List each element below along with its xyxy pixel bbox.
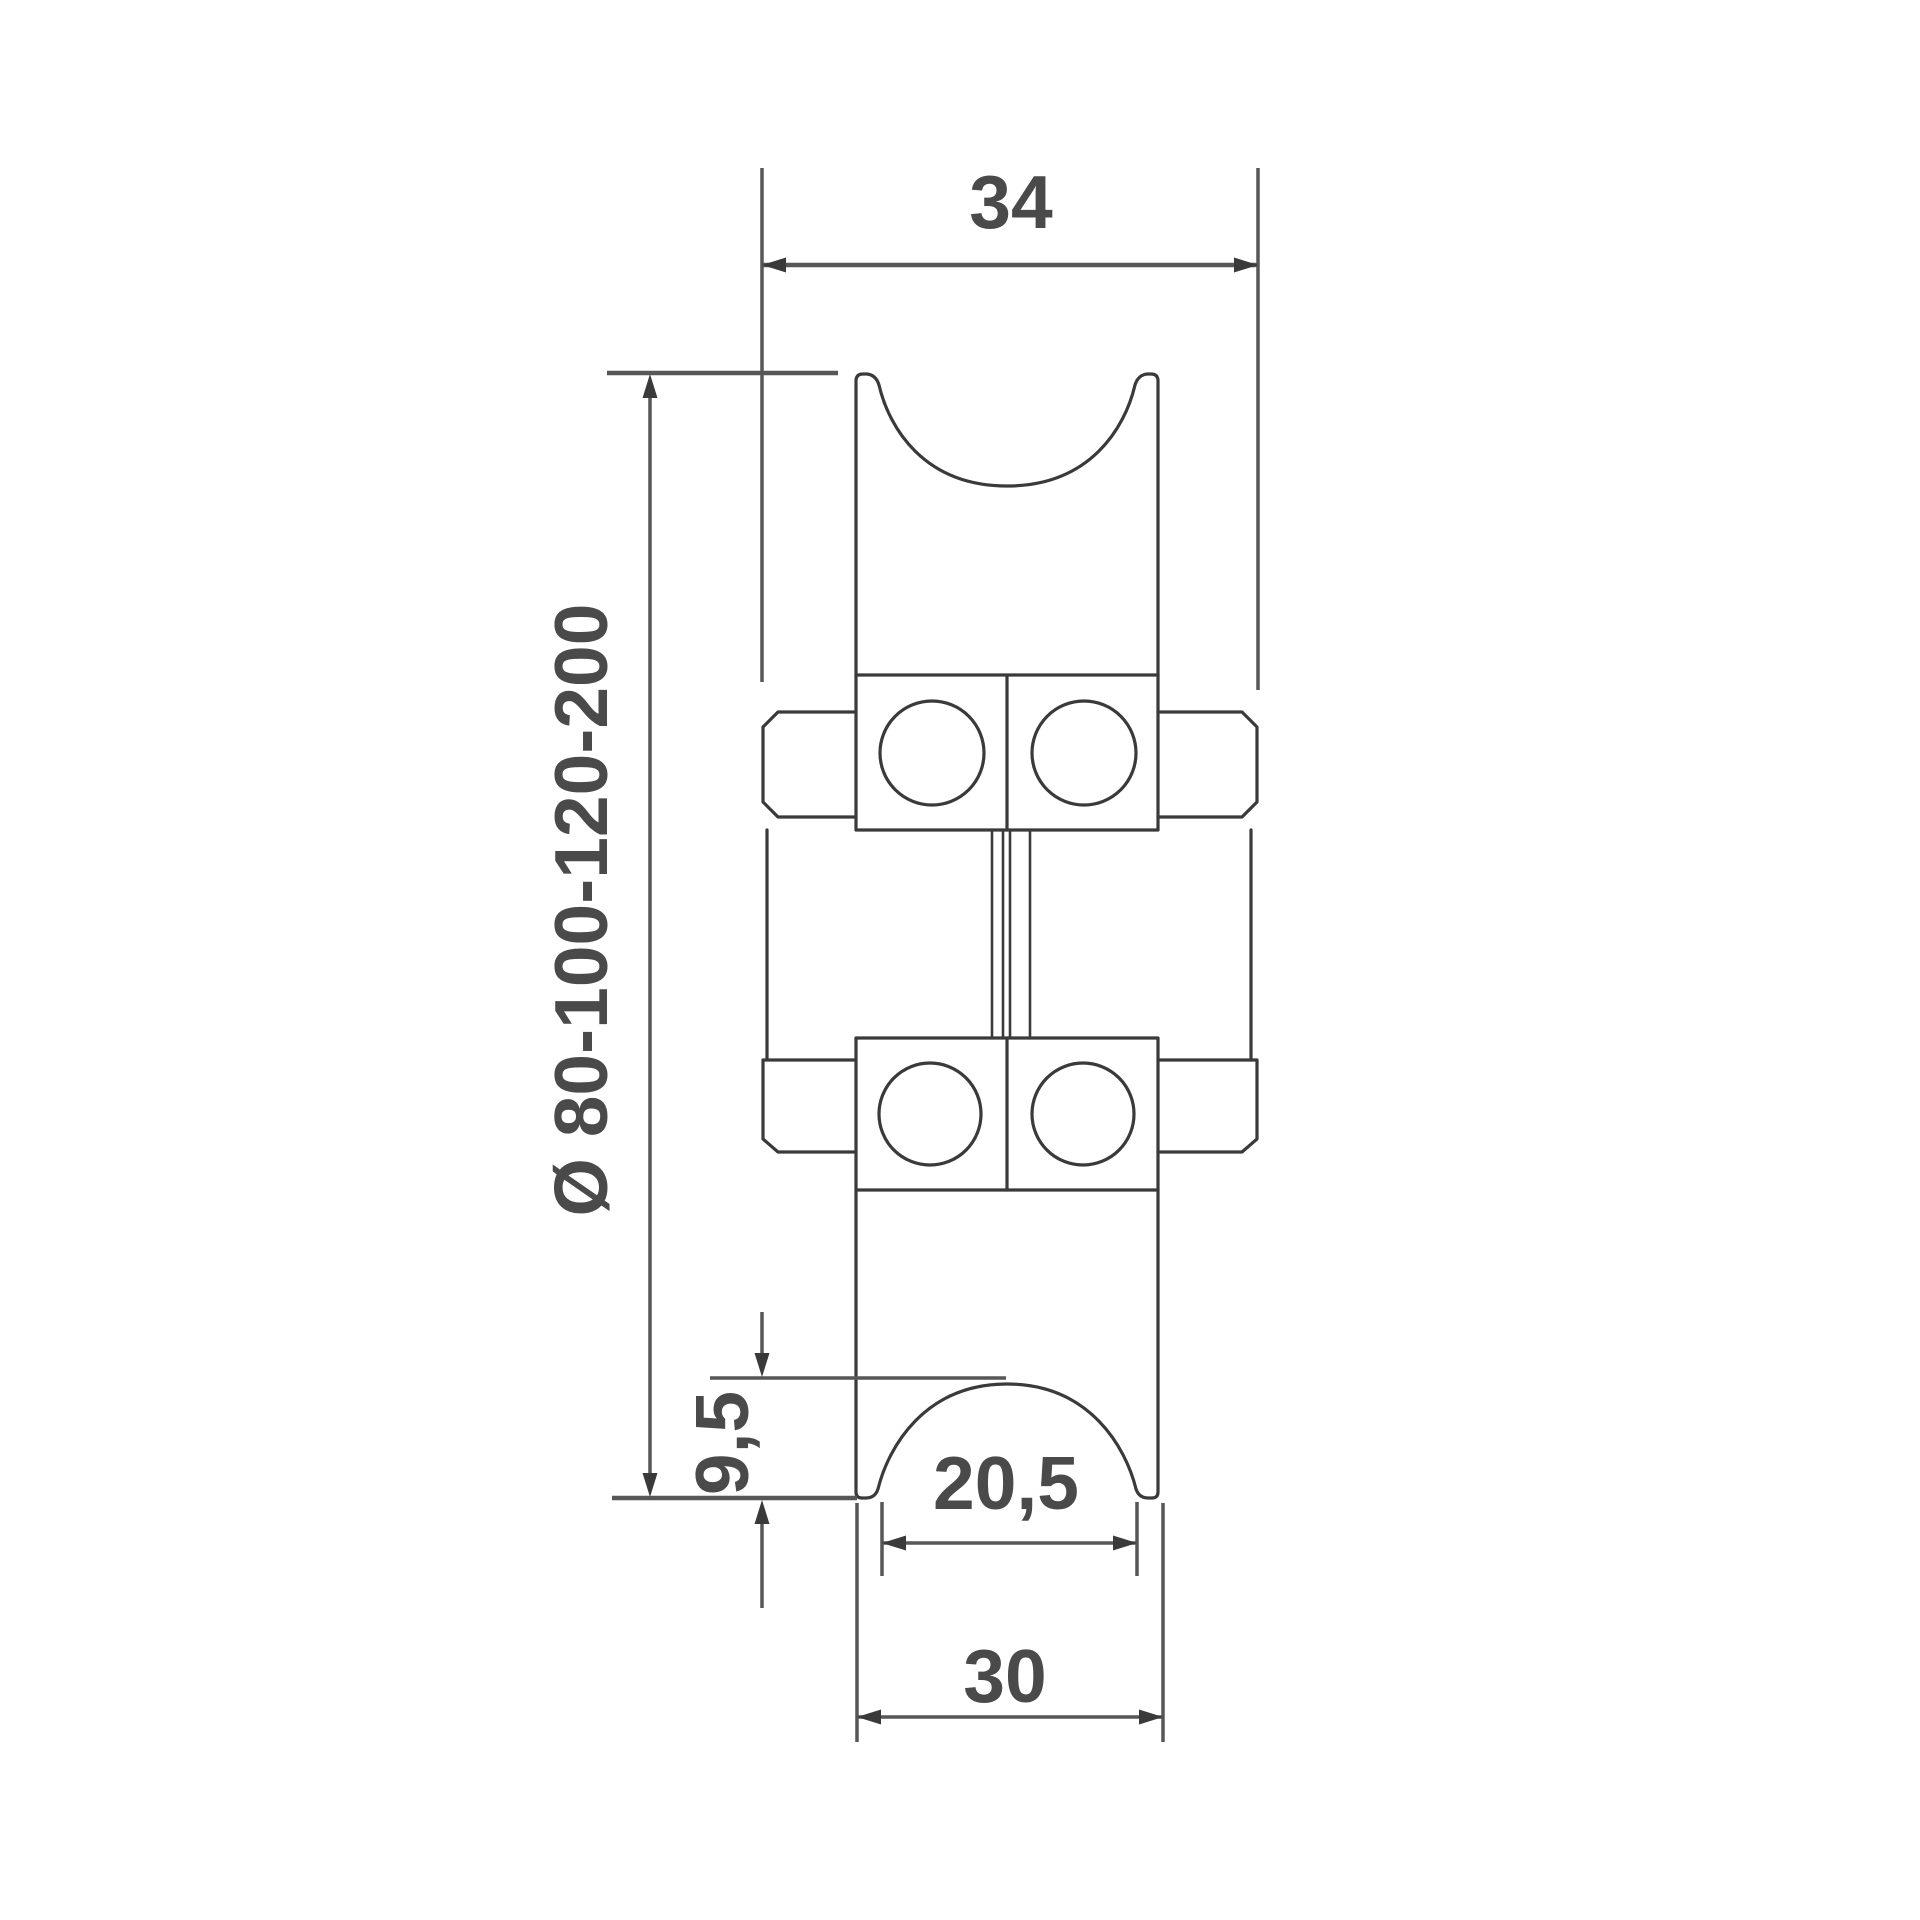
- arrowhead-left: [882, 1536, 906, 1551]
- dim-label-diameter: Ø 80-100-120-200: [539, 604, 623, 1217]
- upper-right-flange-tab: [1158, 712, 1257, 817]
- dim-label-34: 34: [969, 160, 1053, 244]
- arrowhead-right: [1234, 258, 1258, 273]
- arrowhead-up: [643, 374, 658, 398]
- arrowhead-right: [1113, 1536, 1137, 1551]
- lower-bearing-left-ball: [879, 1063, 981, 1165]
- arrowhead-down: [755, 1353, 770, 1377]
- lower-right-flange-tab: [1158, 1060, 1257, 1152]
- dim-label-hub-width: 30: [963, 1634, 1046, 1718]
- upper-bearing-right-ball: [1032, 701, 1136, 805]
- lower-bearing-right-ball: [1032, 1063, 1134, 1165]
- dimension-groove-width: 20,5: [882, 1441, 1137, 1576]
- pulley-cross-section: [763, 374, 1257, 1498]
- upper-bearing-left-ball: [880, 701, 984, 805]
- pulley-technical-drawing: 34 Ø 80-100-120-200 9,5 20,5 30: [0, 0, 1920, 1920]
- arrowhead-up: [755, 1500, 770, 1524]
- arrowhead-left: [857, 1710, 881, 1725]
- dim-label-groove-depth: 9,5: [680, 1391, 764, 1495]
- arrowhead-right: [1139, 1710, 1163, 1725]
- drawing-canvas: 34 Ø 80-100-120-200 9,5 20,5 30: [0, 0, 1920, 1920]
- dimension-width-34: 34: [762, 160, 1258, 690]
- arrowhead-left: [762, 258, 786, 273]
- upper-left-flange-tab: [763, 712, 856, 817]
- dim-label-groove-width: 20,5: [933, 1441, 1079, 1525]
- lower-left-flange-tab: [763, 1060, 856, 1152]
- arrowhead-down: [643, 1473, 658, 1497]
- upper-rim-profile: [856, 374, 1158, 676]
- dimension-diameter: Ø 80-100-120-200: [539, 373, 857, 1498]
